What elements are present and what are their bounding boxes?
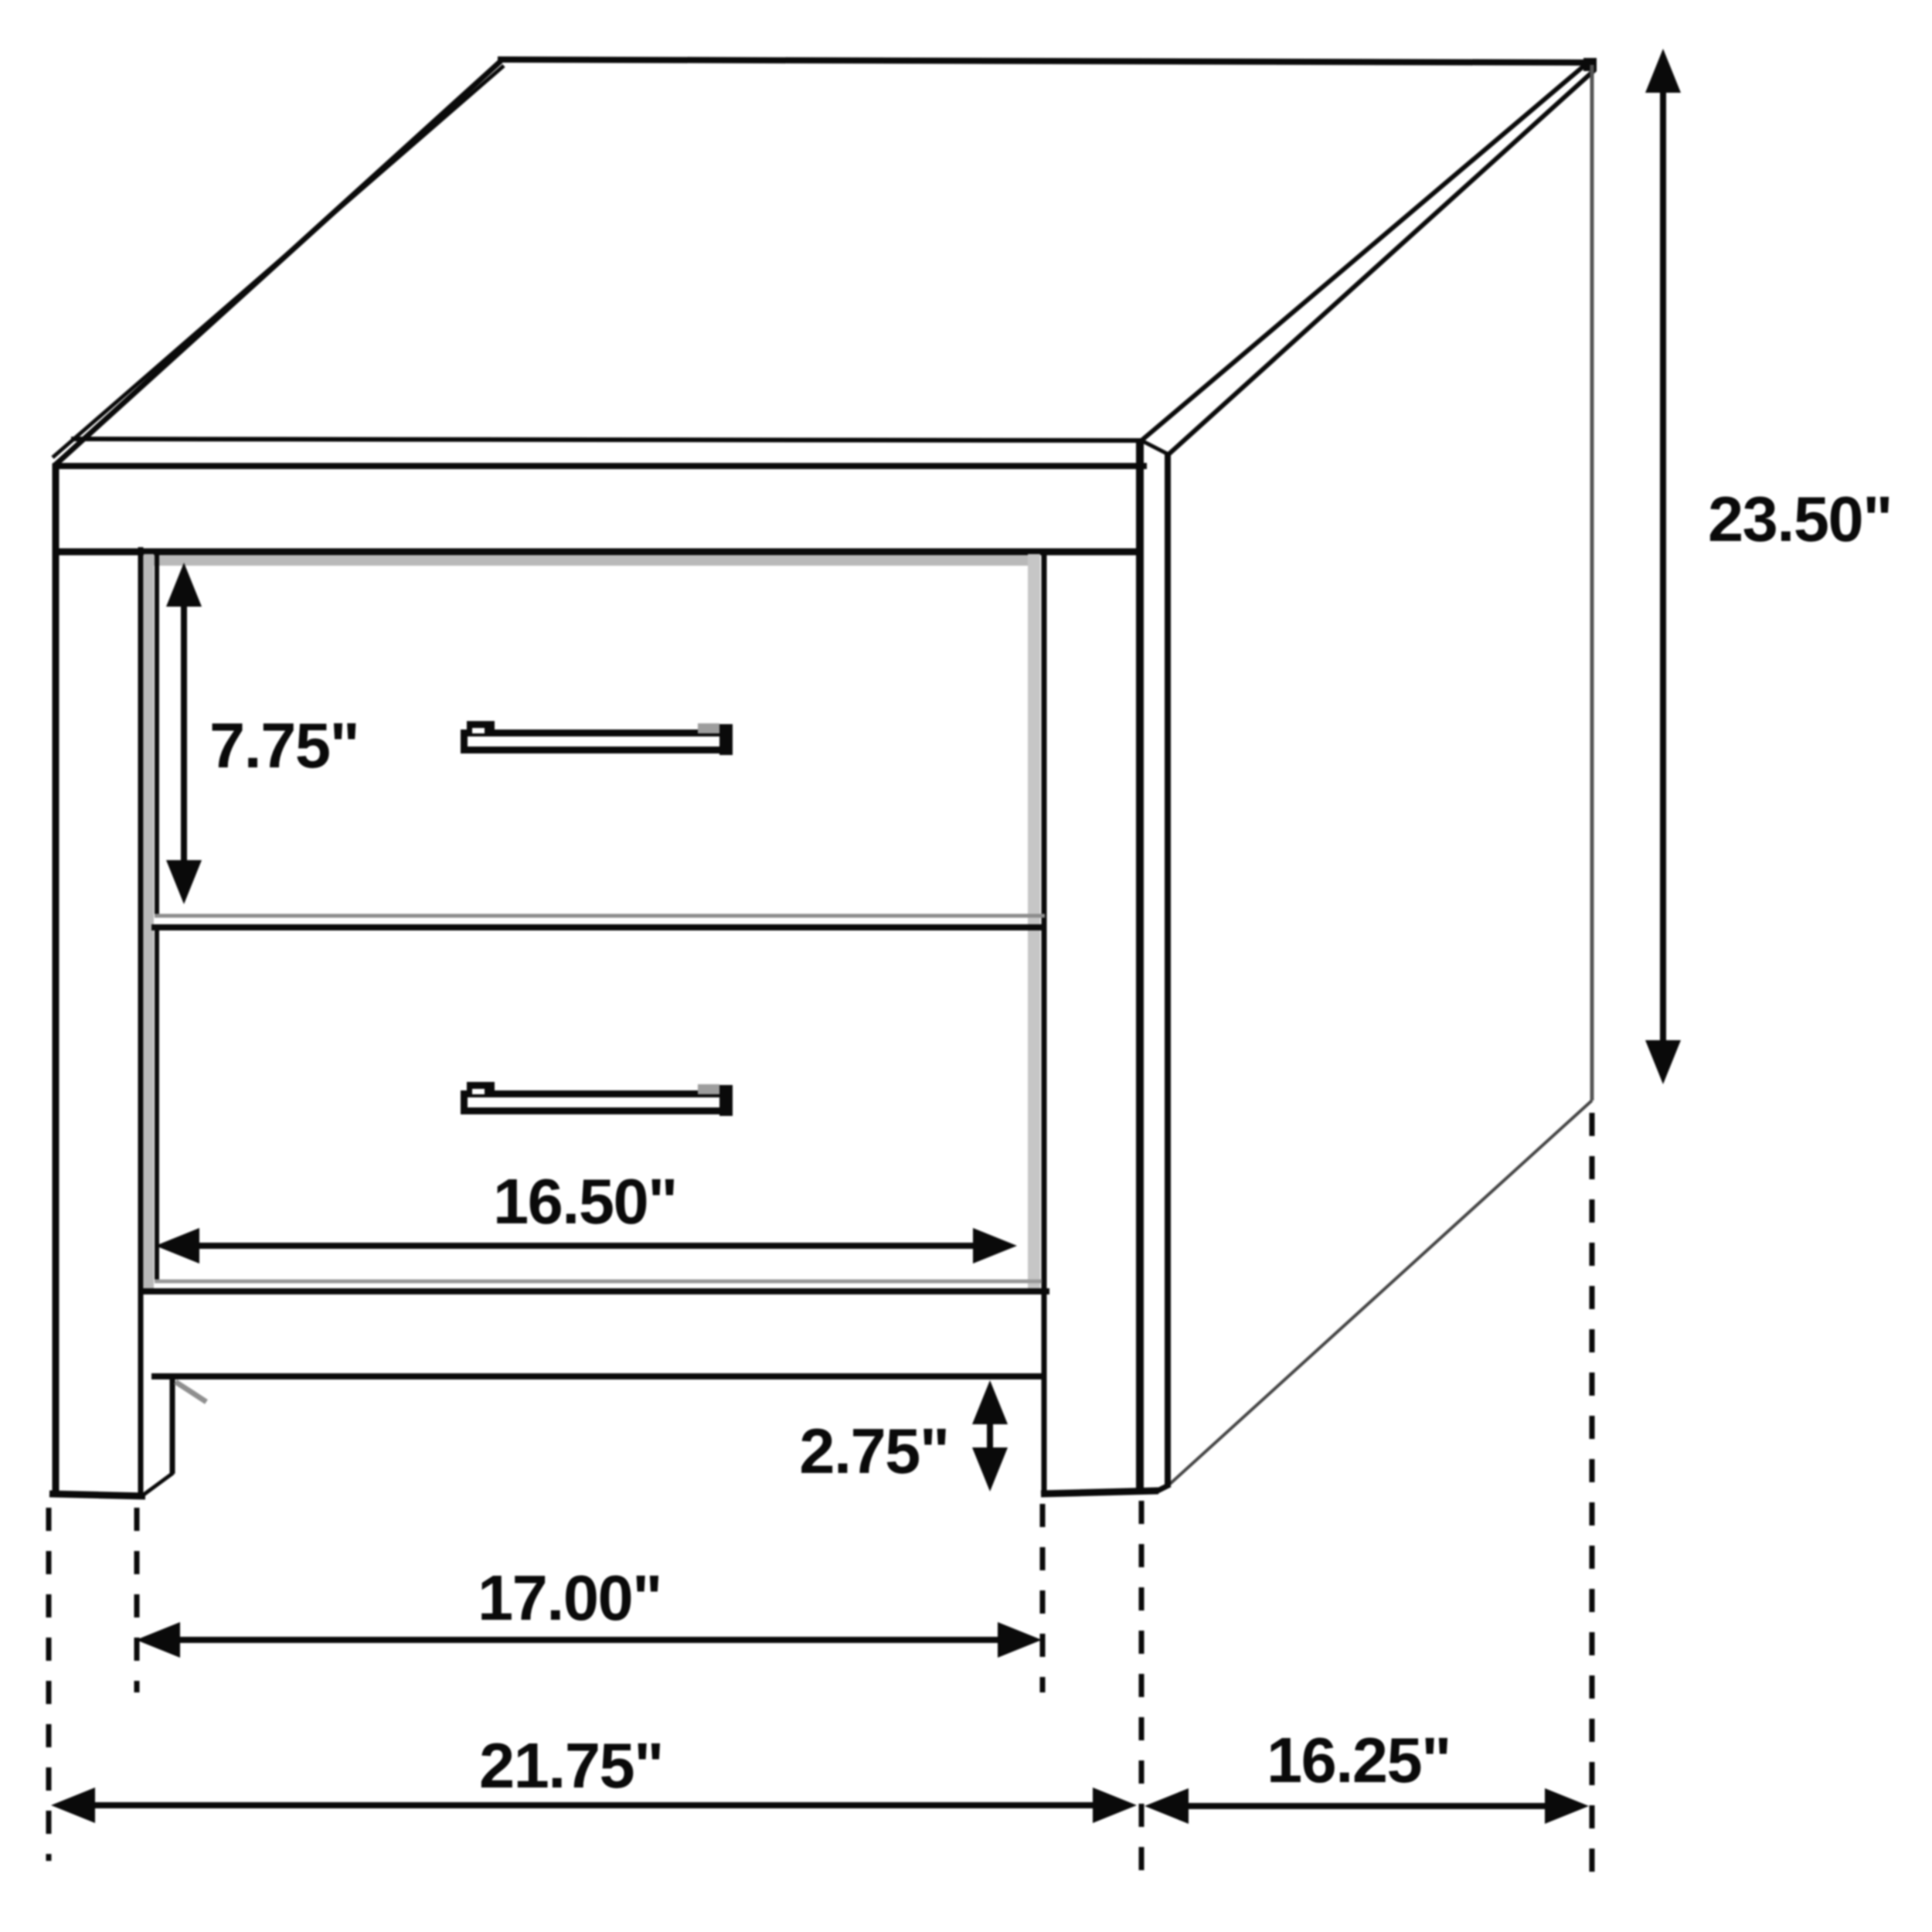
svg-text:17.00": 17.00": [478, 1562, 662, 1634]
svg-text:21.75": 21.75": [479, 1730, 663, 1801]
svg-text:7.75": 7.75": [209, 709, 359, 781]
svg-text:16.50": 16.50": [493, 1165, 677, 1237]
svg-text:23.50": 23.50": [1708, 483, 1892, 555]
svg-text:2.75": 2.75": [799, 1415, 948, 1487]
svg-text:16.25": 16.25": [1267, 1724, 1451, 1796]
